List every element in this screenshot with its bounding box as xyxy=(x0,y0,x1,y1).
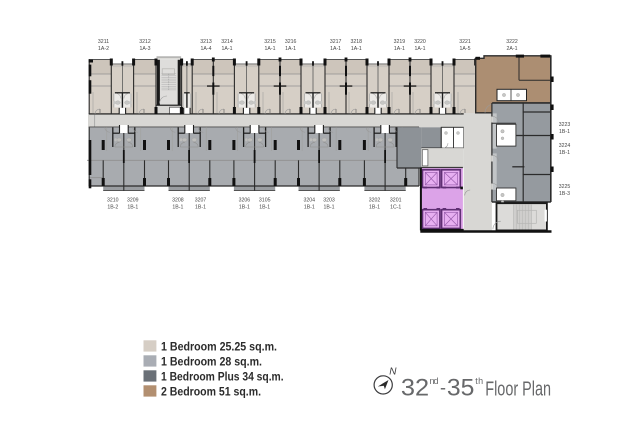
svg-text:1A-5: 1A-5 xyxy=(460,46,471,52)
svg-text:1A-1: 1A-1 xyxy=(222,46,233,52)
svg-text:1B-1: 1B-1 xyxy=(195,204,206,210)
svg-text:1B-1: 1B-1 xyxy=(259,204,270,210)
svg-text:1B-1: 1B-1 xyxy=(304,204,315,210)
svg-text:3211: 3211 xyxy=(98,39,109,45)
svg-text:3208: 3208 xyxy=(172,198,184,204)
svg-text:1B-1: 1B-1 xyxy=(369,204,380,210)
svg-text:1B-1: 1B-1 xyxy=(172,204,183,210)
svg-text:3222: 3222 xyxy=(506,39,518,45)
svg-text:1A-1: 1A-1 xyxy=(265,46,276,52)
svg-text:3204: 3204 xyxy=(304,198,316,204)
svg-text:-: - xyxy=(440,378,446,398)
svg-text:3215: 3215 xyxy=(264,39,276,45)
svg-text:1B-1: 1B-1 xyxy=(239,204,250,210)
svg-text:1B-1: 1B-1 xyxy=(127,204,138,210)
svg-text:3212: 3212 xyxy=(139,39,151,45)
svg-text:3210: 3210 xyxy=(107,198,119,204)
svg-text:35: 35 xyxy=(447,375,475,402)
svg-text:3220: 3220 xyxy=(414,39,426,45)
svg-text:3213: 3213 xyxy=(200,39,212,45)
svg-text:3201: 3201 xyxy=(390,198,402,204)
svg-text:1B-2: 1B-2 xyxy=(107,204,118,210)
svg-text:1A-3: 1A-3 xyxy=(140,46,151,52)
svg-text:3202: 3202 xyxy=(369,198,381,204)
svg-text:32: 32 xyxy=(401,375,429,402)
svg-text:1A-2: 1A-2 xyxy=(98,46,109,52)
svg-text:3221: 3221 xyxy=(459,39,471,45)
svg-text:1A-1: 1A-1 xyxy=(351,46,362,52)
svg-text:3209: 3209 xyxy=(127,198,139,204)
svg-text:nd: nd xyxy=(430,376,439,386)
svg-text:1A-1: 1A-1 xyxy=(415,46,426,52)
svg-text:3216: 3216 xyxy=(285,39,297,45)
svg-text:1A-4: 1A-4 xyxy=(201,46,212,52)
svg-text:3218: 3218 xyxy=(351,39,363,45)
svg-text:1A-1: 1A-1 xyxy=(330,46,341,52)
svg-text:3207: 3207 xyxy=(195,198,207,204)
svg-text:1A-1: 1A-1 xyxy=(285,46,296,52)
svg-text:3225: 3225 xyxy=(559,184,571,190)
svg-text:1C-1: 1C-1 xyxy=(390,204,401,210)
svg-text:1 Bedroom 28 sq.m.: 1 Bedroom 28 sq.m. xyxy=(161,354,262,368)
svg-text:1B-3: 1B-3 xyxy=(559,191,570,197)
svg-text:1 Bedroom 25.25 sq.m.: 1 Bedroom 25.25 sq.m. xyxy=(161,339,277,353)
svg-text:1A-1: 1A-1 xyxy=(394,46,405,52)
svg-text:1B-1: 1B-1 xyxy=(324,204,335,210)
svg-text:2A-1: 2A-1 xyxy=(507,46,518,52)
svg-text:3214: 3214 xyxy=(221,39,233,45)
svg-text:1B-1: 1B-1 xyxy=(559,150,570,156)
svg-text:3203: 3203 xyxy=(323,198,335,204)
svg-text:2 Bedroom 51 sq.m.: 2 Bedroom 51 sq.m. xyxy=(161,384,261,398)
svg-text:3105: 3105 xyxy=(259,198,271,204)
svg-text:3217: 3217 xyxy=(330,39,342,45)
svg-text:3224: 3224 xyxy=(559,143,571,149)
svg-text:3206: 3206 xyxy=(239,198,251,204)
svg-text:3223: 3223 xyxy=(559,122,571,128)
svg-text:3219: 3219 xyxy=(394,39,406,45)
svg-text:Floor Plan: Floor Plan xyxy=(485,378,551,401)
svg-text:th: th xyxy=(475,376,483,386)
svg-text:1 Bedroom Plus 34 sq.m.: 1 Bedroom Plus 34 sq.m. xyxy=(161,369,284,383)
svg-text:N: N xyxy=(389,367,397,378)
svg-text:1B-1: 1B-1 xyxy=(559,129,570,135)
